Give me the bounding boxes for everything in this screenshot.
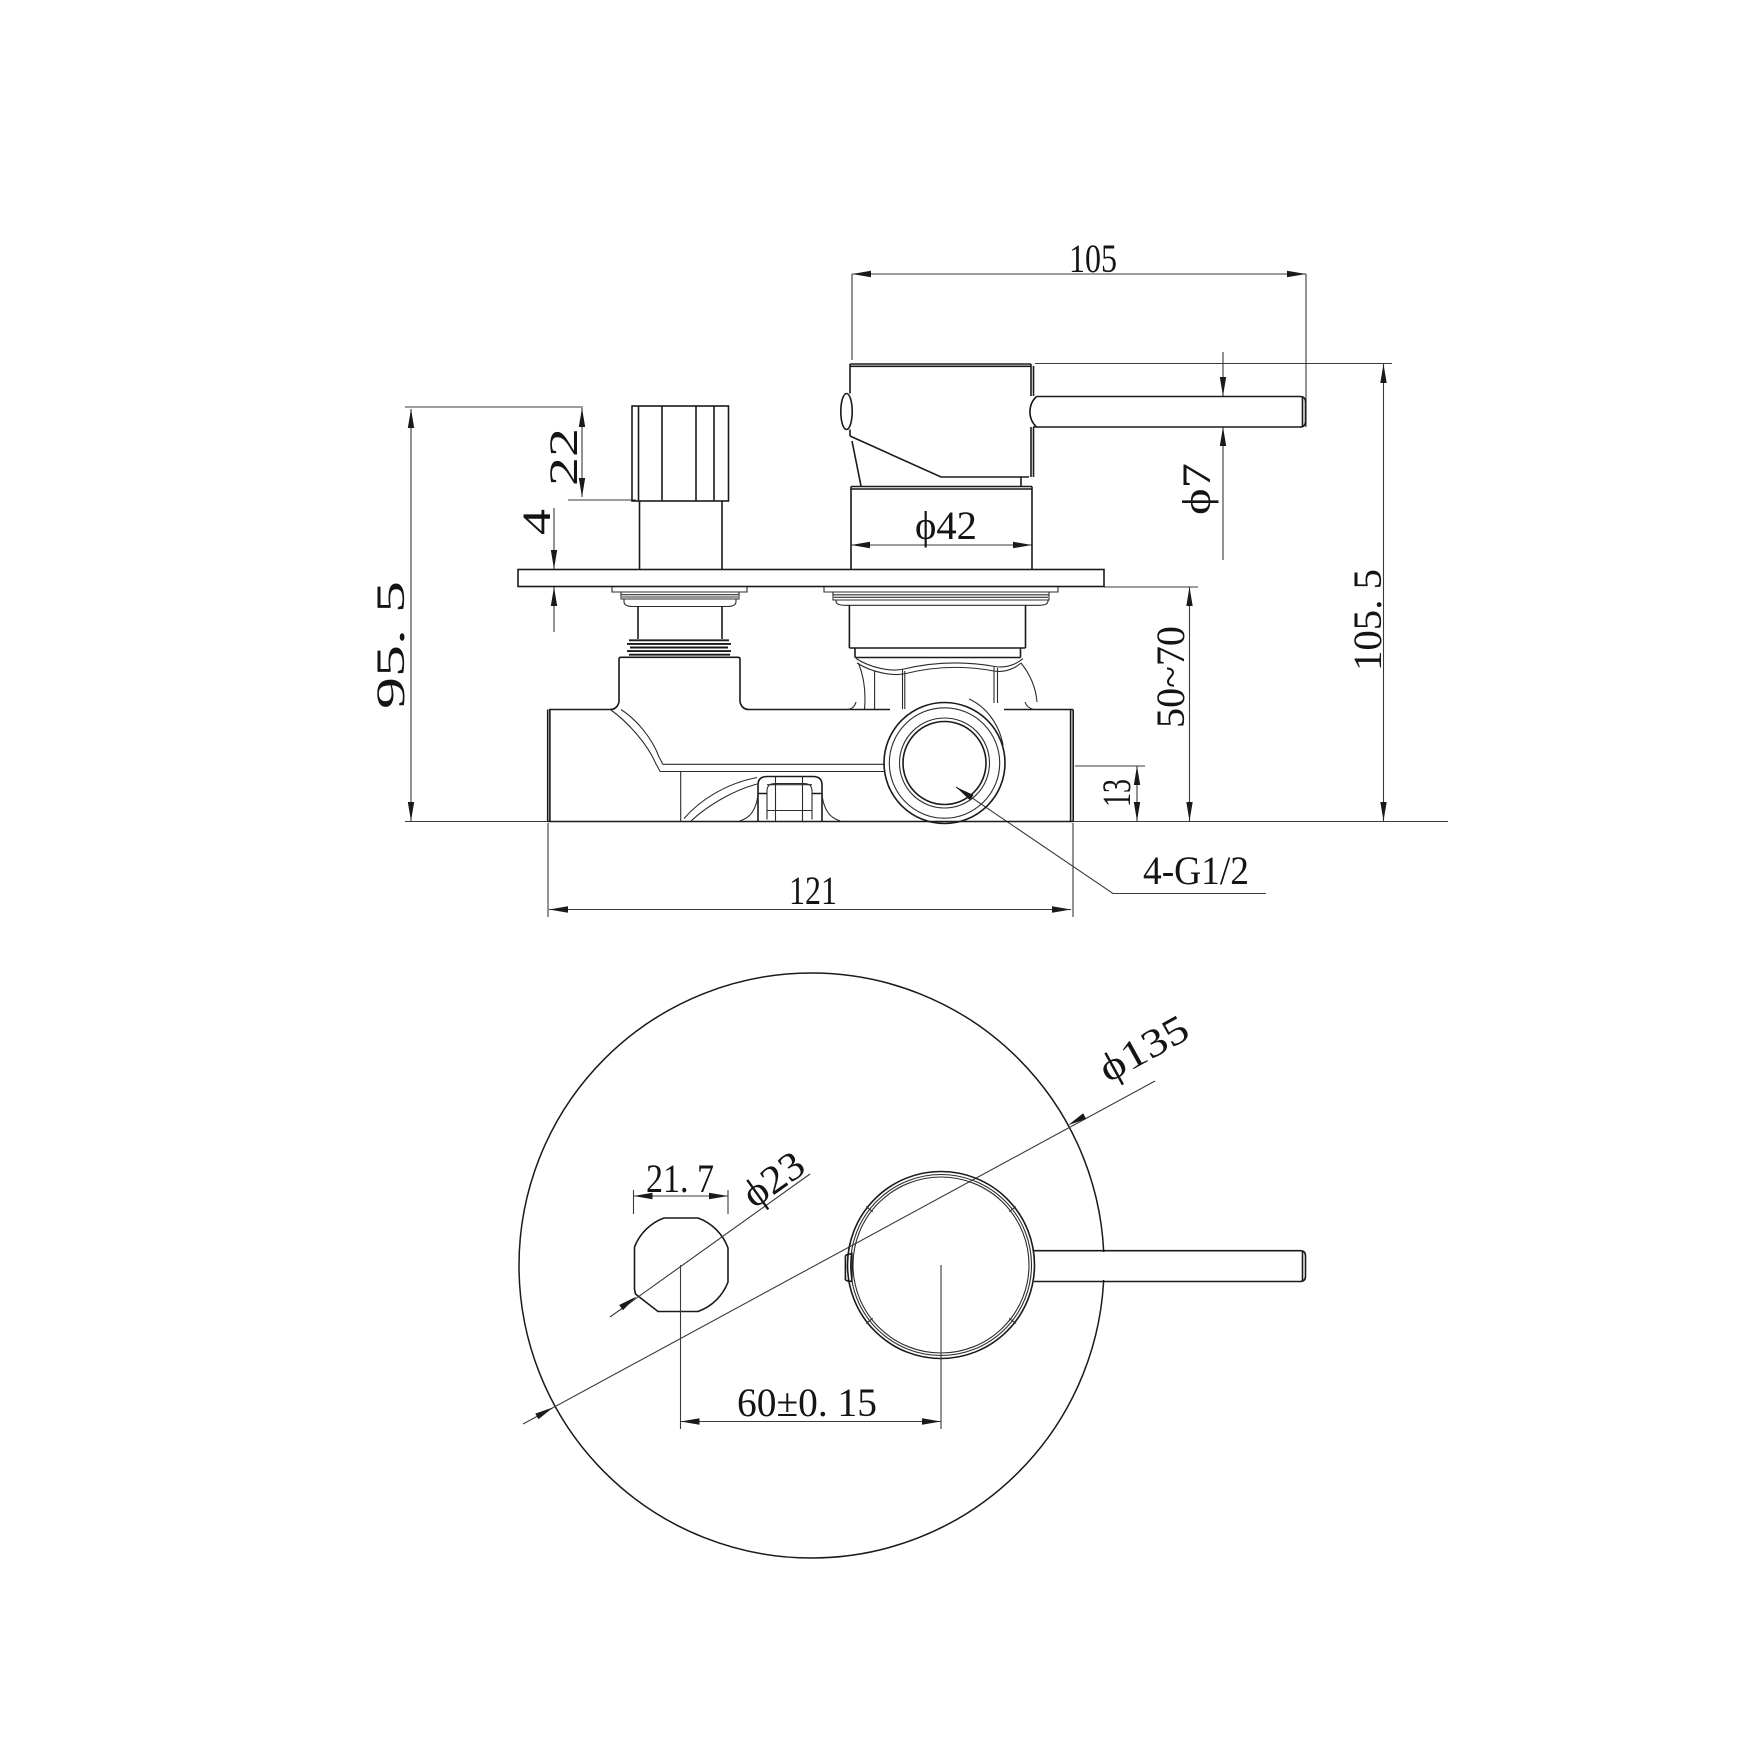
svg-text:105: 105: [1069, 236, 1117, 281]
svg-text:ϕ42: ϕ42: [915, 503, 977, 548]
svg-text:105. 5: 105. 5: [1345, 569, 1390, 671]
svg-text:13: 13: [1094, 779, 1139, 807]
svg-text:ϕ7: ϕ7: [1174, 463, 1219, 515]
svg-text:4-G1/2: 4-G1/2: [1143, 848, 1249, 893]
svg-text:121: 121: [789, 868, 837, 913]
svg-text:4: 4: [514, 509, 559, 535]
svg-text:95. 5: 95. 5: [368, 581, 413, 709]
svg-text:21. 7: 21. 7: [646, 1156, 714, 1201]
svg-text:22: 22: [541, 428, 586, 486]
svg-text:60±0. 15: 60±0. 15: [737, 1380, 877, 1425]
svg-text:50~70: 50~70: [1148, 626, 1193, 728]
